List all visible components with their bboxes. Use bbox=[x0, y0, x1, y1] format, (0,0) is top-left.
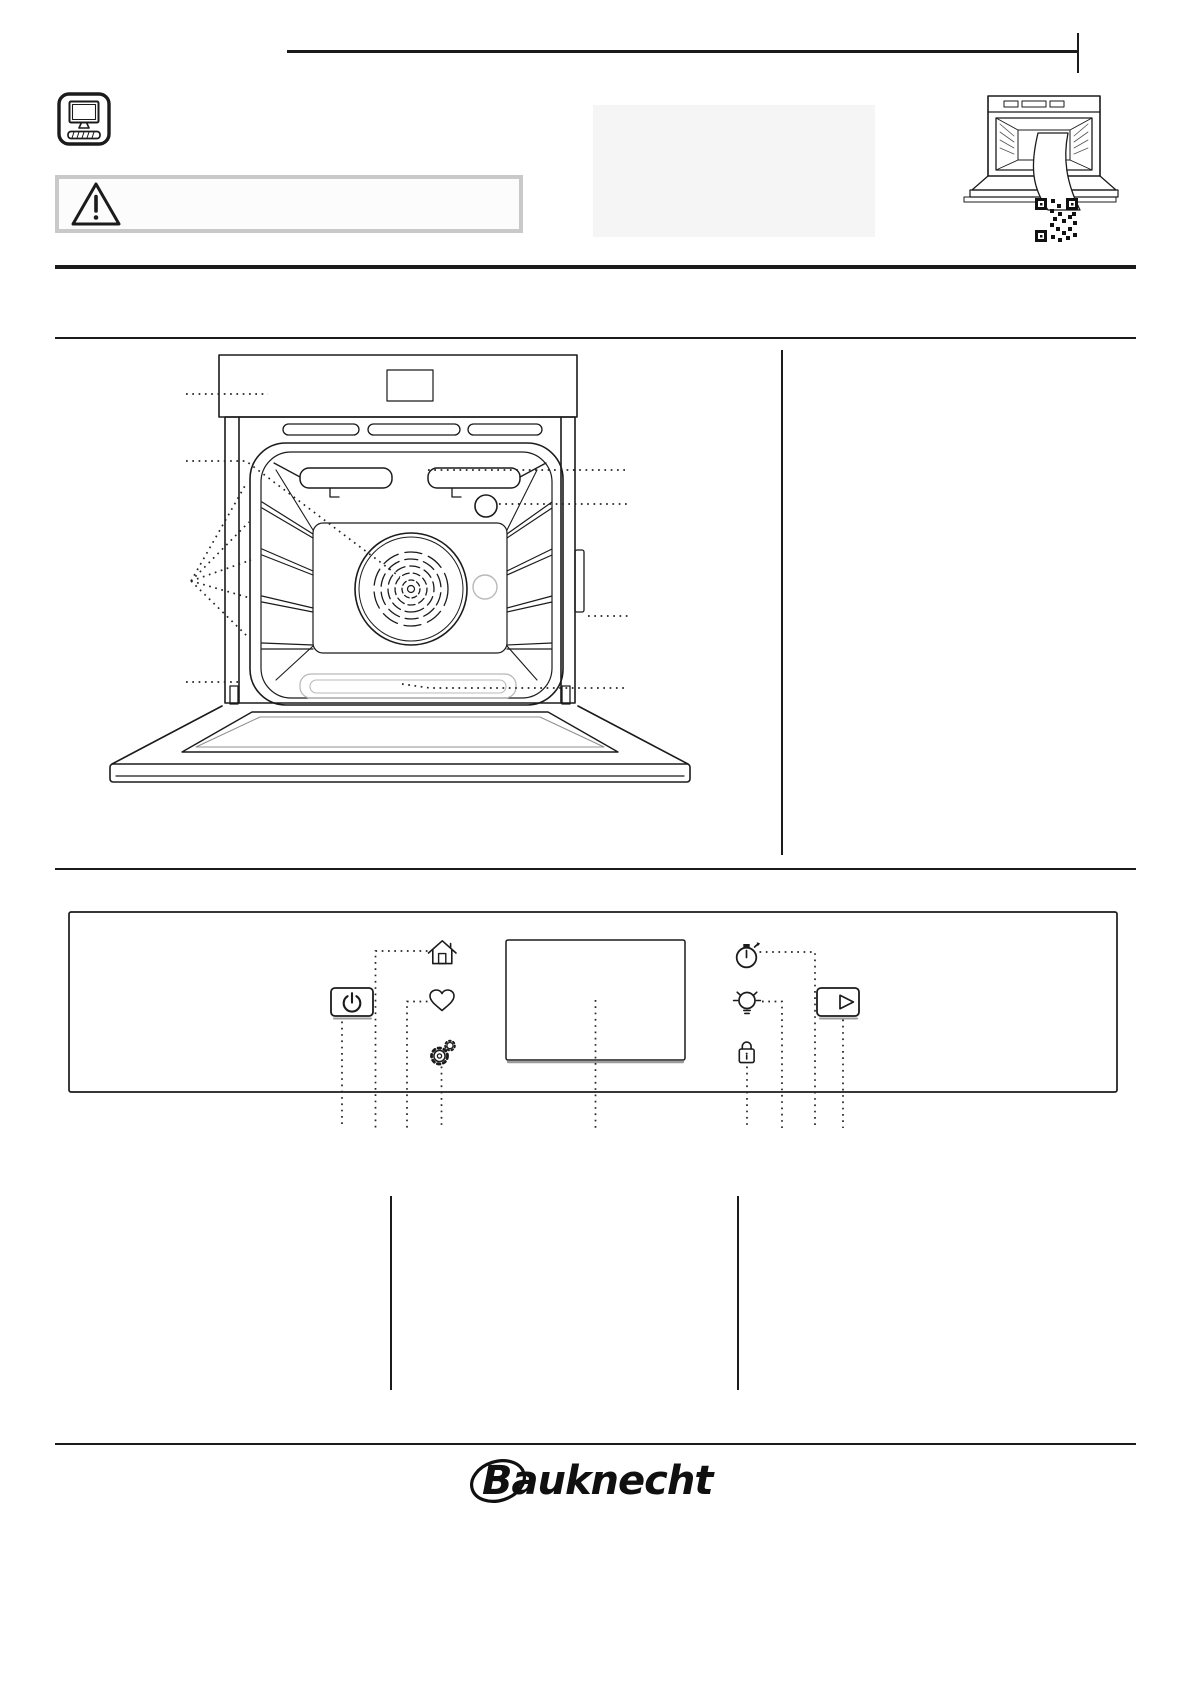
bottom-heating-element bbox=[300, 674, 516, 698]
power-icon bbox=[344, 993, 361, 1011]
oven-back-wall bbox=[313, 523, 507, 653]
control-panel-outline bbox=[69, 912, 1117, 1092]
gear-icon bbox=[432, 1041, 455, 1064]
oven-lamp bbox=[475, 495, 497, 517]
bauknecht-logo: Bauknecht bbox=[380, 1450, 810, 1514]
oven-with-qr-code bbox=[958, 78, 1122, 250]
warning-note-box bbox=[55, 175, 523, 233]
thermostat-sensor bbox=[473, 575, 497, 599]
page-corner-tick bbox=[1077, 33, 1079, 73]
header-panel bbox=[593, 105, 875, 237]
padlock-icon bbox=[739, 1042, 754, 1063]
oven-control-panel bbox=[219, 355, 577, 417]
bulb-icon bbox=[734, 992, 761, 1013]
power-button bbox=[331, 988, 373, 1019]
identification-plate bbox=[575, 550, 584, 612]
text-column-divider-left bbox=[390, 1196, 392, 1390]
manual-page: Bauknecht bbox=[0, 0, 1191, 1684]
oven-door bbox=[110, 706, 690, 782]
oven-front-view bbox=[100, 345, 695, 800]
control-panel-diagram bbox=[60, 905, 1122, 1133]
oven-display bbox=[387, 370, 433, 401]
warning-triangle-icon bbox=[69, 180, 123, 228]
heart-icon bbox=[430, 990, 454, 1011]
section-rule-panel bbox=[55, 868, 1136, 870]
grill-heating-element bbox=[274, 463, 546, 497]
shelf-runners bbox=[262, 502, 552, 649]
text-column-divider-right bbox=[737, 1196, 739, 1390]
brand-wordmark: Bauknecht bbox=[482, 1458, 715, 1504]
panel-callout-lines bbox=[342, 951, 843, 1128]
start-button bbox=[817, 988, 859, 1019]
computer-manual-icon bbox=[56, 91, 112, 147]
section-rule-figure bbox=[55, 337, 1136, 339]
figure-column-divider bbox=[781, 350, 783, 855]
home-icon bbox=[429, 941, 457, 964]
play-icon bbox=[840, 995, 853, 1008]
fan bbox=[355, 533, 467, 645]
header-rule bbox=[287, 50, 1078, 53]
section-rule-thick bbox=[55, 265, 1136, 269]
footer-rule bbox=[55, 1443, 1136, 1445]
stopwatch-icon bbox=[737, 942, 760, 967]
